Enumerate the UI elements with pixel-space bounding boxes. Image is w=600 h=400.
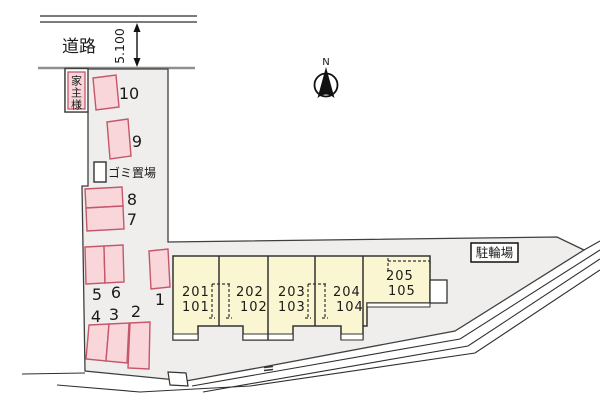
stall-8 bbox=[85, 187, 123, 208]
unit-102: 102 bbox=[240, 300, 268, 315]
stall-3 bbox=[106, 323, 129, 363]
unit-205: 205 bbox=[386, 269, 414, 284]
unit-101: 101 bbox=[182, 300, 210, 315]
building-entry-tab bbox=[430, 280, 447, 303]
stall-4 bbox=[86, 324, 109, 361]
garbage-label: ゴミ置場 bbox=[108, 165, 156, 180]
stall-label-4: 4 bbox=[91, 307, 101, 326]
dimension-label: 5.100 bbox=[112, 28, 127, 64]
stall-label-2: 2 bbox=[131, 302, 141, 321]
boundary-utility-box bbox=[168, 372, 188, 386]
unit-203: 203 bbox=[278, 285, 306, 300]
landlord-label: 家主様 bbox=[70, 75, 82, 111]
stall-7 bbox=[86, 206, 124, 231]
unit-201: 201 bbox=[182, 285, 210, 300]
stall-label-3: 3 bbox=[109, 305, 119, 324]
stall-1 bbox=[149, 249, 170, 289]
dimension-arrowhead-top bbox=[134, 23, 141, 32]
stall-label-6: 6 bbox=[111, 283, 121, 302]
stall-label-7: 7 bbox=[127, 210, 137, 229]
unit-105: 105 bbox=[388, 284, 416, 299]
north-label: N bbox=[322, 57, 329, 68]
stall-10 bbox=[93, 75, 119, 110]
stall-5 bbox=[85, 246, 105, 284]
stall-2 bbox=[128, 322, 150, 369]
road-hatch-mark bbox=[264, 367, 273, 371]
stall-label-9: 9 bbox=[132, 132, 142, 151]
unit-104: 104 bbox=[336, 300, 364, 315]
north-arrow-icon bbox=[315, 67, 338, 98]
stall-label-5: 5 bbox=[92, 285, 102, 304]
stall-9 bbox=[107, 119, 131, 159]
stall-label-10: 10 bbox=[119, 84, 139, 103]
site-plan: 道路 5.100 10 9 8 7 5 6 1 4 3 2 ゴミ置場 bbox=[0, 0, 600, 400]
unit-204: 204 bbox=[333, 285, 361, 300]
stall-label-8: 8 bbox=[127, 190, 137, 209]
bicycle-parking-label: 駐輪場 bbox=[476, 245, 514, 260]
road-label: 道路 bbox=[62, 37, 96, 57]
top-road-lines bbox=[40, 16, 197, 22]
stall-label-1: 1 bbox=[155, 290, 165, 309]
garbage-box bbox=[94, 162, 106, 182]
stall-6 bbox=[104, 245, 124, 283]
site-plan-drawing: 道路 5.100 10 9 8 7 5 6 1 4 3 2 ゴミ置場 bbox=[0, 0, 600, 400]
dimension-arrowhead-bottom bbox=[134, 58, 141, 67]
unit-202: 202 bbox=[236, 285, 264, 300]
unit-103: 103 bbox=[278, 300, 306, 315]
